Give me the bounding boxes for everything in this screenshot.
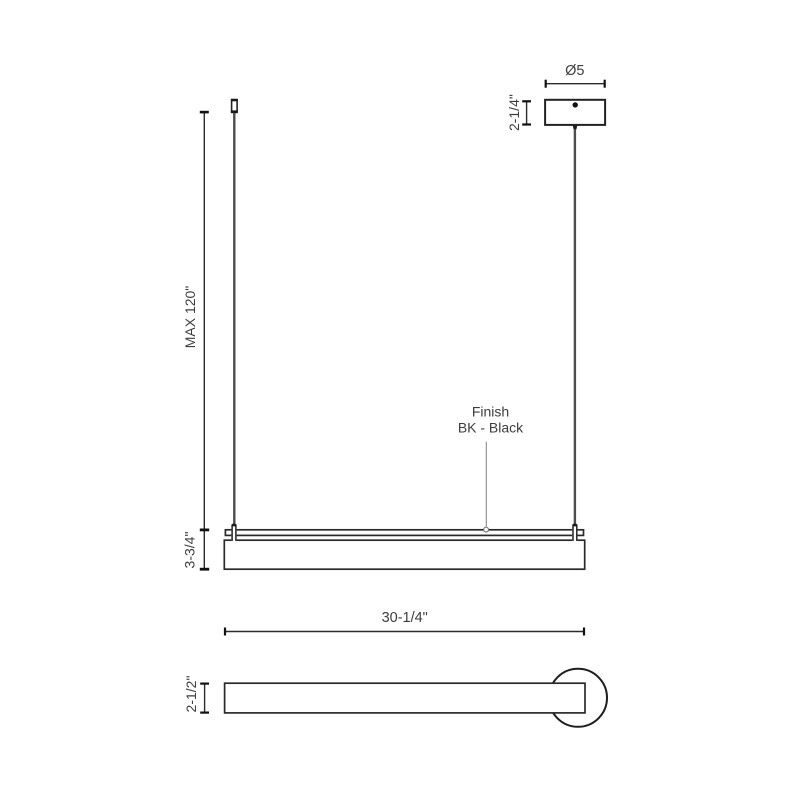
svg-text:MAX 120": MAX 120" xyxy=(182,286,198,349)
svg-text:3-3/4": 3-3/4" xyxy=(182,532,198,569)
svg-text:2-1/2": 2-1/2" xyxy=(183,676,199,713)
svg-text:Finish: Finish xyxy=(472,403,509,419)
svg-text:Ø5: Ø5 xyxy=(565,63,584,79)
svg-text:2-1/4": 2-1/4" xyxy=(506,94,522,131)
svg-text:30-1/4": 30-1/4" xyxy=(382,610,428,626)
svg-text:BK - Black: BK - Black xyxy=(458,419,524,435)
